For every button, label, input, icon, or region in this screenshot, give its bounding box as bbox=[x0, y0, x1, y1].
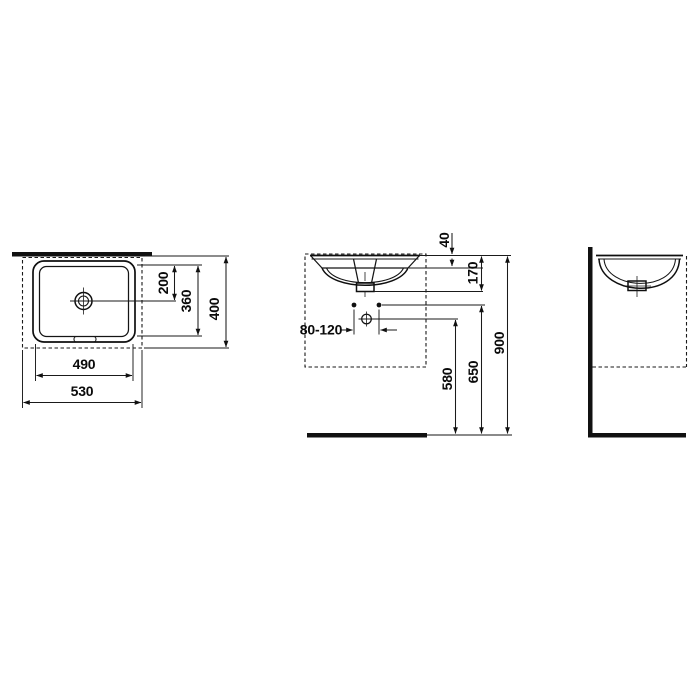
basin-outer-edge bbox=[33, 261, 135, 342]
dim-label-530: 530 bbox=[71, 383, 94, 399]
floor-line bbox=[307, 433, 427, 438]
side-view bbox=[588, 247, 687, 438]
rim-slant-right bbox=[408, 256, 420, 269]
floor-line bbox=[588, 433, 686, 438]
fixing-point-left bbox=[352, 303, 357, 308]
wall-line bbox=[588, 247, 593, 437]
washbasin-dimension-drawing: 200 360 400 490 530 bbox=[0, 0, 700, 700]
dim-label-40: 40 bbox=[436, 232, 452, 248]
dim-label-400: 400 bbox=[206, 297, 222, 320]
dim-label-360: 360 bbox=[178, 289, 194, 312]
dim-label-580: 580 bbox=[439, 367, 455, 390]
front-view: 80-120 40 170 580 650 900 bbox=[300, 232, 512, 437]
drain-column-right bbox=[372, 259, 377, 283]
dim-label-490: 490 bbox=[73, 356, 96, 372]
wall-line bbox=[12, 252, 152, 257]
technical-drawing-canvas: 200 360 400 490 530 bbox=[0, 0, 700, 700]
drain-column-left bbox=[354, 259, 359, 283]
bowl-inner-curve bbox=[604, 259, 676, 283]
dim-label-900: 900 bbox=[491, 331, 507, 354]
rim-slant-left bbox=[311, 256, 323, 269]
drain-outlet-box bbox=[357, 283, 375, 292]
dim-label-80-120: 80-120 bbox=[300, 322, 343, 338]
basin-inner-rim bbox=[40, 267, 129, 337]
top-view: 200 360 400 490 530 bbox=[12, 252, 229, 408]
dim-label-650: 650 bbox=[465, 360, 481, 383]
dim-label-170: 170 bbox=[465, 261, 481, 284]
dim-label-200: 200 bbox=[155, 271, 171, 294]
fixing-point-right bbox=[377, 303, 382, 308]
